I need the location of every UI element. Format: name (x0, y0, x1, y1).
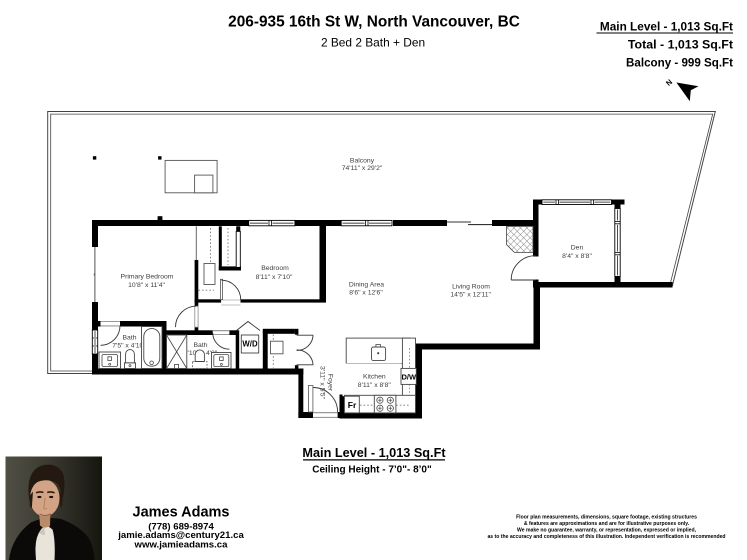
svg-text:Floor plan measurements, dimen: Floor plan measurements, dimensions, squ… (516, 514, 697, 520)
svg-text:Balcony: Balcony (350, 157, 375, 164)
svg-text:Main Level - 1,013 Sq.Ft: Main Level - 1,013 Sq.Ft (302, 446, 446, 460)
svg-text:W/D: W/D (242, 340, 258, 349)
svg-text:James Adams: James Adams (133, 505, 230, 521)
svg-text:as to the accuracy and complet: as to the accuracy and completeness of t… (487, 534, 725, 540)
svg-text:8'4" x 8'8": 8'4" x 8'8" (562, 253, 592, 260)
svg-text:& features are approximations: & features are approximations and are fo… (524, 521, 690, 527)
svg-text:8'11" x 7'10": 8'11" x 7'10" (256, 274, 293, 281)
svg-text:8'6" x 12'6": 8'6" x 12'6" (349, 290, 383, 297)
svg-text:N: N (664, 77, 674, 87)
svg-text:Dining Area: Dining Area (349, 281, 384, 288)
svg-text:206-935 16th St W, North Vanco: 206-935 16th St W, North Vancouver, BC (228, 14, 520, 31)
svg-text:Den: Den (571, 245, 584, 252)
svg-text:Main Level - 1,013 Sq.Ft: Main Level - 1,013 Sq.Ft (600, 20, 733, 34)
svg-text:Balcony - 999 Sq.Ft: Balcony - 999 Sq.Ft (626, 56, 733, 69)
svg-text:8'11" x 8'8": 8'11" x 8'8" (358, 382, 392, 389)
svg-text:74'11" x 29'2": 74'11" x 29'2" (342, 165, 383, 172)
svg-text:2 Bed 2 Bath + Den: 2 Bed 2 Bath + Den (321, 35, 425, 49)
svg-text:Bath: Bath (123, 334, 137, 341)
svg-text:D/W: D/W (402, 373, 418, 382)
svg-text:Foyer: Foyer (327, 374, 334, 392)
svg-text:Ceiling Height - 7’0"- 8’0": Ceiling Height - 7’0"- 8’0" (312, 465, 432, 476)
svg-text:Total - 1,013 Sq.Ft: Total - 1,013 Sq.Ft (628, 38, 733, 52)
svg-text:Fr: Fr (348, 400, 357, 410)
svg-text:14'5" x 12'11": 14'5" x 12'11" (450, 292, 491, 299)
svg-text:Bath: Bath (194, 342, 208, 349)
svg-text:Kitchen: Kitchen (363, 374, 386, 381)
svg-text:Living Room: Living Room (452, 283, 490, 290)
svg-text:3'11" x 5'5": 3'11" x 5'5" (318, 366, 325, 400)
svg-text:10'8" x 11'4": 10'8" x 11'4" (128, 282, 165, 289)
svg-text:We make no guarantee, warranty: We make no guarantee, warranty, or repre… (517, 527, 697, 533)
svg-text:Bedroom: Bedroom (261, 265, 289, 272)
svg-text:Primary Bedroom: Primary Bedroom (121, 274, 174, 281)
svg-text:www.jamieadams.ca: www.jamieadams.ca (134, 540, 229, 551)
